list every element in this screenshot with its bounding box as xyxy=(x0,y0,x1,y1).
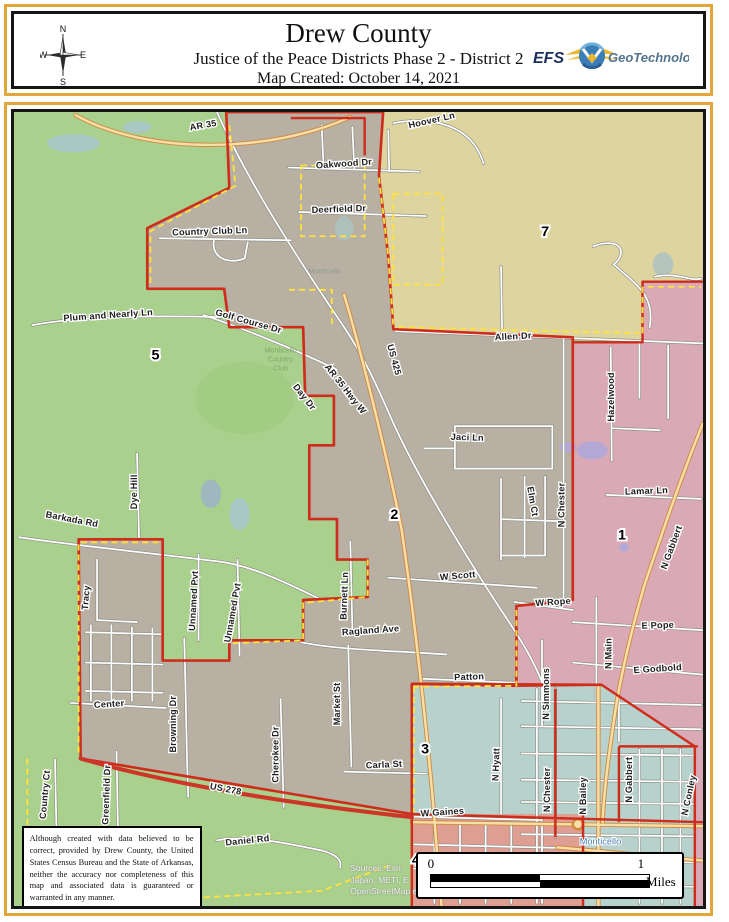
scale-bar-segment xyxy=(430,874,650,881)
road-label: E Pope xyxy=(641,620,674,631)
highway-junction-marker xyxy=(573,819,583,829)
road-label: N Gabbert xyxy=(624,757,634,803)
road-label: N Main xyxy=(604,638,614,669)
road-label: N Simmons xyxy=(541,668,551,720)
road-label: Burnett Ln xyxy=(338,571,350,619)
district-number-label: 3 xyxy=(421,742,429,758)
logo-efs-text: EFS xyxy=(533,50,564,67)
header-frame: N E S W Drew County Justice of the Peace… xyxy=(4,4,713,96)
road-label: Center xyxy=(94,698,125,710)
road-label: Allen Dr xyxy=(494,330,532,342)
road-label: N Chester xyxy=(557,482,567,527)
road-label: Jaci Ln xyxy=(451,432,485,443)
place-label: Club xyxy=(273,365,288,373)
place-label: Monticello xyxy=(309,268,341,276)
scale-start: 0 xyxy=(428,856,435,872)
road-label: Hazelwood xyxy=(606,372,616,421)
road-label: Lamar Ln xyxy=(625,485,669,496)
map-frame: AR 35Hoover LnOakwood DrDeerfield DrCoun… xyxy=(4,102,713,916)
district-number-label: 2 xyxy=(390,507,398,523)
road-label: Patton xyxy=(454,671,484,682)
road-label: Carla St xyxy=(366,759,403,771)
road-label: Cherokee Dr xyxy=(270,726,280,782)
efs-geotechnologies-logo: EFS GeoTechnologies xyxy=(531,36,689,76)
map-canvas[interactable]: AR 35Hoover LnOakwood DrDeerfield DrCoun… xyxy=(14,112,703,906)
scale-unit: Miles xyxy=(646,874,676,890)
place-label: Country xyxy=(268,356,294,364)
disclaimer-box: Although created with data believed to b… xyxy=(22,826,202,909)
district-number-label: 1 xyxy=(618,527,626,543)
road-label: N Hyatt xyxy=(490,748,501,781)
header: N E S W Drew County Justice of the Peace… xyxy=(11,11,706,89)
road-label: N Bailey xyxy=(578,776,588,814)
road-label: N Chester xyxy=(542,767,552,812)
district-number-label: 7 xyxy=(541,224,549,240)
district-map: AR 35Hoover LnOakwood DrDeerfield DrCoun… xyxy=(14,112,703,906)
road-label: Deerfield Dr xyxy=(311,203,366,215)
place-label: Monticello xyxy=(580,836,621,846)
road-label: Browning Dr xyxy=(168,696,178,753)
road-label: Market St xyxy=(332,683,342,726)
scale-bar-segment xyxy=(430,881,650,888)
scale-bar: 0 1 Miles xyxy=(416,852,684,899)
road-label: Dye Hill xyxy=(129,474,139,509)
logo-geo-text: GeoTechnologies xyxy=(608,50,689,65)
map-window: AR 35Hoover LnOakwood DrDeerfield DrCoun… xyxy=(11,109,706,909)
road-label: Greenfield Dr xyxy=(100,764,112,825)
scale-end: 1 xyxy=(638,856,645,872)
district-number-label: 5 xyxy=(152,348,160,364)
place-label: Monticello xyxy=(264,346,296,354)
